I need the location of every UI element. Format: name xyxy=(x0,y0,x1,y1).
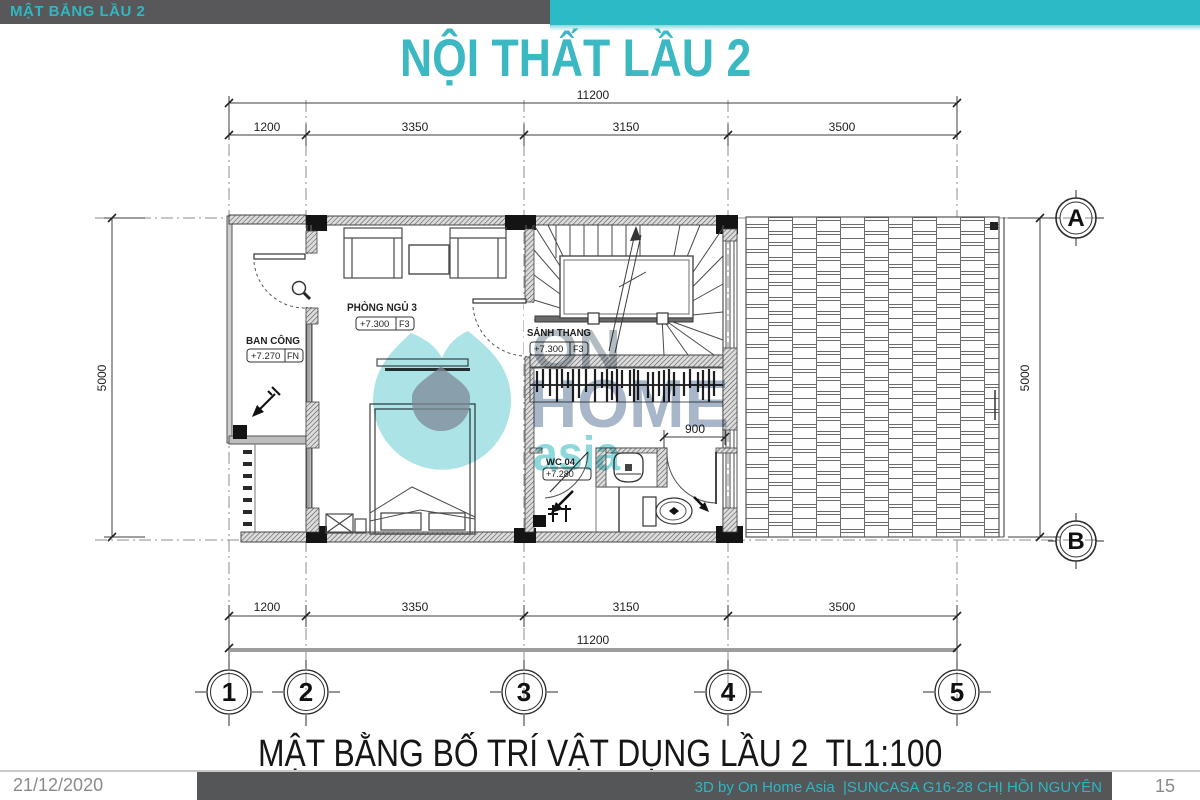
svg-text:B: B xyxy=(1067,528,1084,555)
svg-text:1: 1 xyxy=(222,677,236,707)
svg-text:asia: asia xyxy=(533,428,620,481)
svg-text:PHÒNG NGỦ 3: PHÒNG NGỦ 3 xyxy=(347,301,417,314)
svg-text:3500: 3500 xyxy=(829,600,856,614)
svg-text:1200: 1200 xyxy=(254,600,281,614)
svg-text:5: 5 xyxy=(950,677,964,707)
svg-text:3150: 3150 xyxy=(613,120,640,134)
svg-text:3150: 3150 xyxy=(613,600,640,614)
svg-text:+7.270: +7.270 xyxy=(251,351,280,362)
svg-text:5000: 5000 xyxy=(95,364,109,391)
svg-text:2: 2 xyxy=(299,677,313,707)
svg-text:11200: 11200 xyxy=(577,633,610,647)
svg-text:FN: FN xyxy=(287,351,299,361)
svg-text:A: A xyxy=(1067,205,1084,232)
svg-text:11200: 11200 xyxy=(577,88,610,102)
svg-text:3500: 3500 xyxy=(829,120,856,134)
svg-text:1200: 1200 xyxy=(254,120,281,134)
svg-text:F3: F3 xyxy=(399,319,410,329)
svg-text:BAN CÔNG: BAN CÔNG xyxy=(246,334,300,347)
svg-text:+7.300: +7.300 xyxy=(360,319,389,330)
svg-text:3350: 3350 xyxy=(402,600,429,614)
svg-text:4: 4 xyxy=(721,677,736,707)
svg-text:3: 3 xyxy=(517,677,531,707)
svg-text:3350: 3350 xyxy=(402,120,429,134)
svg-text:5000: 5000 xyxy=(1018,364,1032,391)
